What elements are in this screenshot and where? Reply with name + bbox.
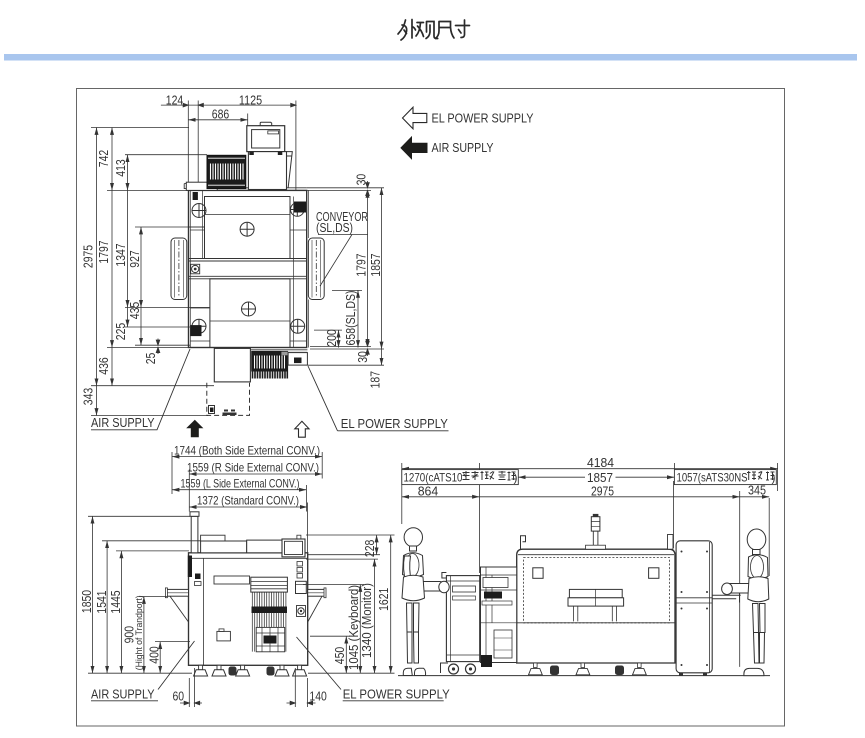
svg-text:AIR SUPPLY: AIR SUPPLY bbox=[91, 415, 155, 430]
svg-text:225: 225 bbox=[113, 323, 128, 340]
svg-text:): ) bbox=[772, 470, 776, 484]
svg-text:228: 228 bbox=[362, 540, 377, 557]
svg-text:345: 345 bbox=[748, 482, 766, 497]
svg-text:EL POWER SUPPLY: EL POWER SUPPLY bbox=[432, 111, 534, 126]
svg-text:435: 435 bbox=[127, 302, 142, 319]
svg-text:187: 187 bbox=[368, 371, 383, 388]
svg-text:1372 (Standard CONV.): 1372 (Standard CONV.) bbox=[197, 494, 299, 508]
svg-text:60: 60 bbox=[173, 689, 185, 704]
svg-text:343: 343 bbox=[81, 388, 96, 405]
svg-text:EL POWER SUPPLY: EL POWER SUPPLY bbox=[343, 687, 450, 702]
svg-text:25: 25 bbox=[143, 353, 158, 365]
svg-text:1857: 1857 bbox=[368, 253, 383, 276]
svg-text:450: 450 bbox=[332, 647, 347, 664]
svg-text:1797: 1797 bbox=[354, 253, 369, 276]
svg-text:2975: 2975 bbox=[591, 483, 614, 498]
svg-text:124: 124 bbox=[166, 92, 184, 107]
svg-text:2975: 2975 bbox=[81, 245, 96, 268]
svg-text:1559 (R Side External CONV.): 1559 (R Side External CONV.) bbox=[187, 461, 319, 475]
svg-text:686: 686 bbox=[212, 107, 230, 122]
svg-text:(SL,DS): (SL,DS) bbox=[316, 220, 353, 235]
svg-text:742: 742 bbox=[96, 150, 111, 167]
svg-text:413: 413 bbox=[113, 159, 128, 176]
svg-text:30: 30 bbox=[355, 351, 370, 363]
svg-text:658(SL,DS): 658(SL,DS) bbox=[343, 291, 358, 346]
svg-text:1559 (L Side External CONV.): 1559 (L Side External CONV.) bbox=[181, 477, 300, 491]
svg-text:1621: 1621 bbox=[376, 588, 391, 611]
svg-text:1340 (Monitor): 1340 (Monitor) bbox=[359, 583, 374, 658]
svg-text:4184: 4184 bbox=[587, 455, 614, 470]
svg-text:AIR SUPPLY: AIR SUPPLY bbox=[91, 687, 155, 702]
svg-text:1445: 1445 bbox=[108, 590, 123, 613]
svg-text:(Hight of Trandport): (Hight of Trandport) bbox=[134, 595, 144, 670]
svg-text:1270(cATS10: 1270(cATS10 bbox=[404, 470, 463, 484]
svg-text:1347: 1347 bbox=[113, 243, 128, 266]
svg-text:927: 927 bbox=[127, 250, 142, 267]
svg-text:140: 140 bbox=[309, 689, 326, 704]
svg-text:1744 (Both Side External CONV.: 1744 (Both Side External CONV.) bbox=[174, 443, 320, 457]
svg-text:436: 436 bbox=[96, 357, 111, 374]
svg-text:1057(sATS30NS: 1057(sATS30NS bbox=[677, 470, 748, 484]
svg-text:200: 200 bbox=[324, 329, 339, 346]
svg-text:1125: 1125 bbox=[239, 92, 262, 107]
svg-text:AIR SUPPLY: AIR SUPPLY bbox=[432, 140, 494, 155]
svg-text:1850: 1850 bbox=[79, 590, 94, 613]
svg-text:EL POWER SUPPLY: EL POWER SUPPLY bbox=[341, 416, 448, 431]
svg-text:30: 30 bbox=[354, 174, 369, 186]
svg-text:400: 400 bbox=[147, 646, 162, 663]
svg-text:864: 864 bbox=[418, 483, 439, 498]
svg-text:1541: 1541 bbox=[94, 590, 109, 613]
svg-text:1797: 1797 bbox=[96, 240, 111, 263]
svg-text:): ) bbox=[514, 470, 518, 484]
